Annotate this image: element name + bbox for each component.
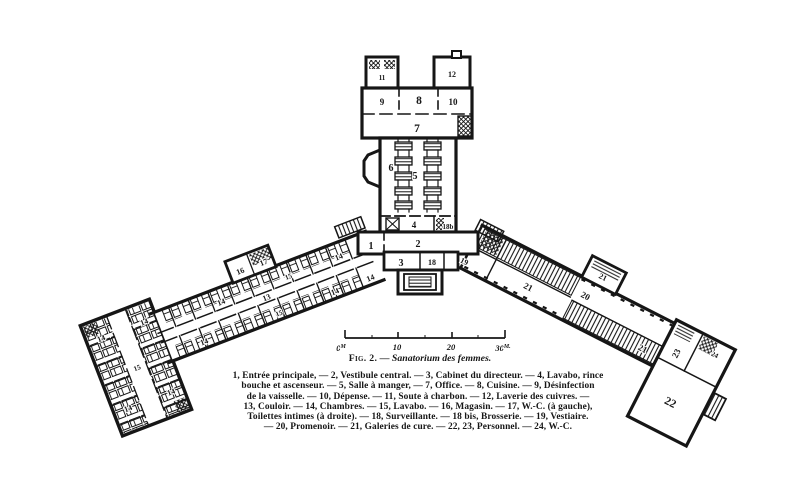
chimney bbox=[452, 51, 461, 58]
room-label-9: 9 bbox=[380, 97, 385, 107]
room-label-4: 4 bbox=[412, 220, 417, 230]
room-label-7: 7 bbox=[414, 123, 420, 135]
stair-hatch bbox=[458, 116, 472, 136]
legend-line: 13, Couloir. — 14, Chambres. — 15, Lavab… bbox=[183, 402, 653, 412]
legend-line: 1, Entrée principale, — 2, Vestibule cen… bbox=[183, 371, 653, 381]
scale-bar: 0M 10 20 30M. bbox=[336, 330, 511, 353]
caption-dash: — bbox=[380, 353, 390, 364]
bay-window bbox=[364, 150, 380, 187]
figure-caption: Fig. 2. — Sanatorium des femmes. bbox=[260, 353, 580, 364]
room-label-12: 12 bbox=[448, 70, 456, 79]
figure-title: Sanatorium des femmes. bbox=[392, 353, 491, 364]
figure-number: Fig. 2. bbox=[349, 353, 378, 364]
room-label-5: 5 bbox=[413, 171, 418, 182]
room-label-8: 8 bbox=[416, 95, 422, 107]
room-label-18: 18 bbox=[428, 258, 436, 267]
scale-label-30: 30M. bbox=[494, 343, 511, 353]
legend-line: Toilettes intimes (à droite). — 18, Surv… bbox=[183, 412, 653, 422]
room-label-18bis: 18b bbox=[443, 223, 454, 231]
scale-label-20: 20 bbox=[446, 342, 456, 352]
room-label-6: 6 bbox=[389, 163, 394, 174]
room-label-2: 2 bbox=[416, 239, 421, 250]
legend-line: de la vaisselle. — 10, Dépense. — 11, So… bbox=[183, 392, 653, 402]
room-label-3: 3 bbox=[399, 258, 404, 269]
entrance-porch bbox=[398, 270, 442, 294]
figure-legend: 1, Entrée principale, — 2, Vestibule cen… bbox=[183, 371, 653, 433]
scanned-figure-page: 14 14 15 14 14 bbox=[0, 0, 800, 491]
legend-line: bouche et ascenseur. — 5, Salle à manger… bbox=[183, 381, 653, 391]
room-label-10: 10 bbox=[449, 97, 459, 107]
room-label-11: 11 bbox=[379, 74, 386, 82]
legend-line: — 20, Promenoir. — 21, Galeries de cure.… bbox=[183, 422, 653, 432]
scale-label-0: 0M bbox=[336, 343, 346, 353]
scale-label-10: 10 bbox=[393, 342, 402, 352]
room-label-1: 1 bbox=[369, 241, 374, 252]
